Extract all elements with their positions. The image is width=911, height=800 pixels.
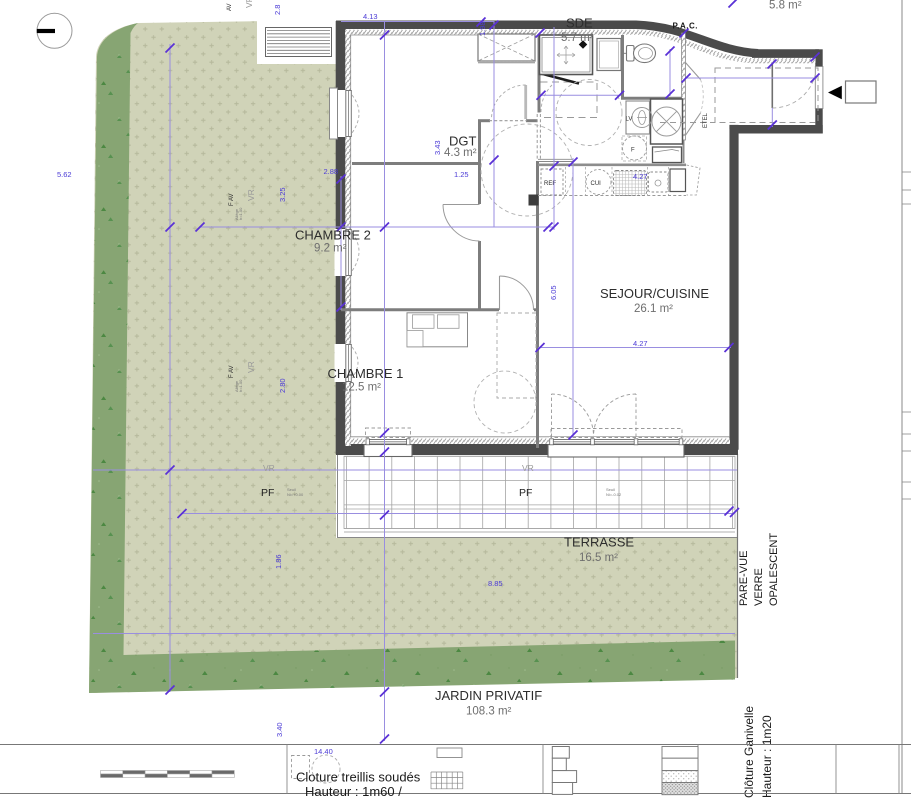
svg-text:4.3 m²: 4.3 m²	[444, 147, 477, 159]
svg-text:3.25: 3.25	[278, 187, 287, 202]
svg-text:4.27: 4.27	[633, 339, 648, 348]
svg-text:F AV: F AV	[229, 193, 235, 206]
svg-text:PARE-VUE: PARE-VUE	[738, 551, 750, 606]
svg-text:ETEL: ETEL	[703, 112, 709, 128]
svg-text:VR: VR	[244, 0, 254, 8]
svg-text:5.62: 5.62	[57, 170, 72, 179]
svg-text:JARDIN PRIVATIF: JARDIN PRIVATIF	[435, 688, 542, 703]
svg-text:F AV: F AV	[229, 365, 235, 378]
svg-text:9.2 m²: 9.2 m²	[314, 243, 347, 255]
svg-text:OPALESCENT: OPALESCENT	[768, 533, 780, 606]
svg-text:12.5 m²: 12.5 m²	[342, 382, 381, 394]
svg-text:1.98: 1.98	[478, 21, 487, 36]
svg-text:F: F	[631, 148, 635, 154]
svg-text:26.1 m²: 26.1 m²	[634, 303, 673, 315]
svg-text:VERRE: VERRE	[753, 568, 765, 606]
svg-text:VR: VR	[522, 463, 534, 473]
svg-text:Clôture Ganivelle: Clôture Ganivelle	[742, 706, 756, 798]
svg-text:TERRASSE: TERRASSE	[564, 535, 634, 550]
svg-text:CUI: CUI	[591, 181, 602, 187]
svg-text:PF: PF	[261, 487, 274, 499]
svg-text:P.A.C.: P.A.C.	[673, 22, 699, 31]
svg-text:4.27: 4.27	[633, 172, 648, 181]
svg-text:SEJOUR/CUISINE: SEJOUR/CUISINE	[600, 286, 709, 301]
svg-text:6.05: 6.05	[549, 285, 558, 300]
svg-text:PF: PF	[519, 487, 532, 499]
svg-text:VR: VR	[246, 189, 256, 201]
svg-text:VR: VR	[246, 361, 256, 373]
svg-text:h=1.00: h=1.00	[238, 207, 243, 220]
svg-text:1.86: 1.86	[274, 554, 283, 569]
svg-text:AV: AV	[227, 3, 233, 11]
svg-text:Ni=-0.02: Ni=-0.02	[606, 492, 622, 497]
svg-text:2.88: 2.88	[324, 167, 339, 176]
svg-text:3.40: 3.40	[275, 722, 284, 737]
svg-text:3.43: 3.43	[433, 140, 442, 155]
svg-text:5.7 m²: 5.7 m²	[561, 32, 594, 44]
svg-text:2.80: 2.80	[278, 378, 287, 393]
svg-text:SDE: SDE	[566, 16, 593, 31]
svg-text:h=1.00: h=1.00	[238, 379, 243, 392]
svg-text:Ni=+0.00: Ni=+0.00	[287, 492, 304, 497]
svg-text:2.8: 2.8	[273, 5, 282, 15]
svg-text:Cloture treillis soudés: Cloture treillis soudés	[296, 770, 421, 785]
svg-text:CHAMBRE 2: CHAMBRE 2	[295, 228, 371, 243]
svg-text:Hauteur : 1m20: Hauteur : 1m20	[760, 715, 774, 798]
svg-text:1.25: 1.25	[454, 170, 469, 179]
svg-text:4.13: 4.13	[363, 12, 378, 21]
svg-text:LV: LV	[626, 117, 633, 123]
svg-text:VR: VR	[263, 463, 275, 473]
svg-text:5.8 m²: 5.8 m²	[769, 0, 802, 12]
svg-text:14.40: 14.40	[314, 747, 333, 756]
svg-text:Hauteur : 1m60 /: Hauteur : 1m60 /	[305, 784, 402, 799]
svg-text:8.85: 8.85	[488, 579, 503, 588]
svg-text:CHAMBRE 1: CHAMBRE 1	[328, 366, 404, 381]
svg-text:16.5 m²: 16.5 m²	[579, 552, 618, 564]
svg-text:108.3 m²: 108.3 m²	[466, 706, 512, 718]
